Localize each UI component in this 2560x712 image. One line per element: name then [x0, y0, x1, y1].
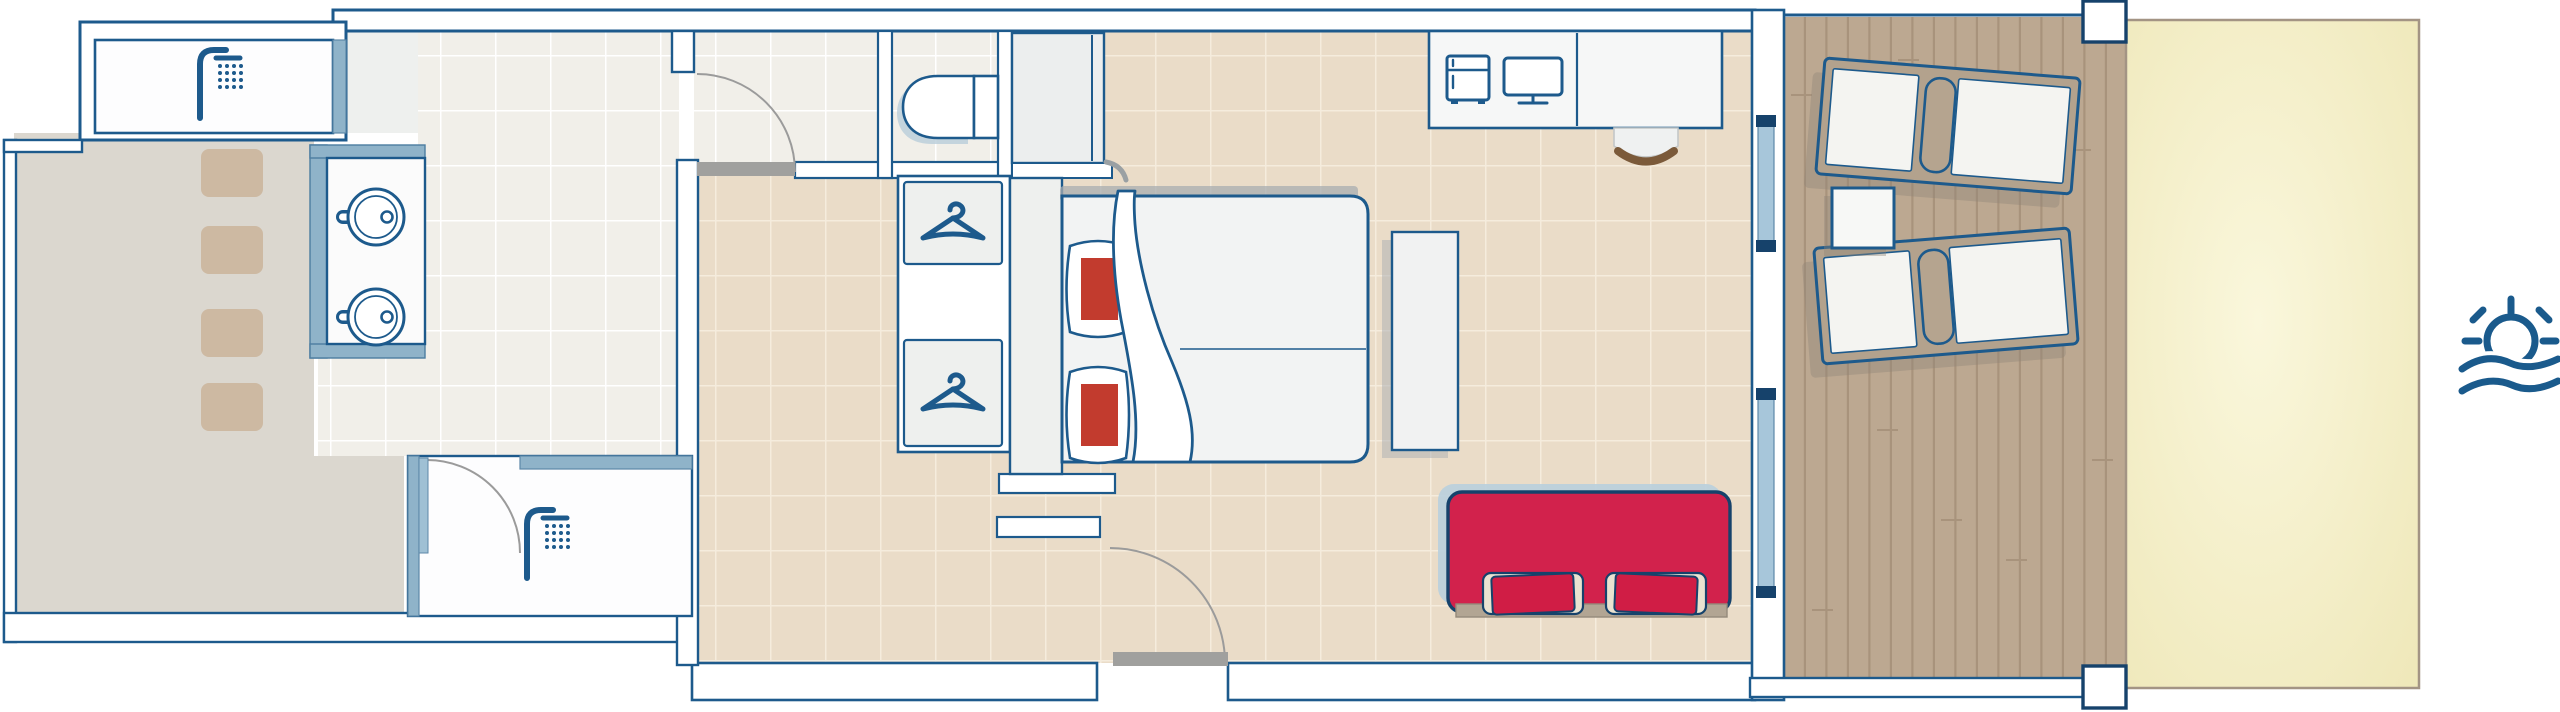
bathroom-floor-ext — [318, 358, 418, 456]
wardrobe — [898, 176, 1010, 452]
floor-plan-canvas — [0, 0, 2560, 712]
pillow-center — [1081, 384, 1118, 446]
stepping-stone — [201, 383, 263, 431]
bed — [1060, 186, 1368, 463]
wardrobe-compartment — [904, 182, 1002, 264]
wall-bottom-main-a — [692, 663, 1097, 700]
glass-panel — [1758, 398, 1774, 588]
sun-over-sea-icon — [2462, 299, 2558, 391]
toilet — [897, 76, 998, 144]
door-leaf — [1113, 652, 1228, 666]
wall-entry-stub — [997, 517, 1100, 537]
wall-bottom-main-b — [1228, 663, 1755, 700]
toilet-tank — [974, 76, 998, 138]
sofa — [1438, 484, 1730, 617]
floor-plan — [0, 0, 2560, 712]
pillow-center — [1081, 258, 1118, 320]
vanity-frame-bottom — [310, 344, 425, 358]
wet-wall-band — [520, 456, 692, 469]
wall-bottom-left — [4, 613, 694, 642]
tv-icon — [1504, 58, 1562, 103]
bed-headboard — [1010, 178, 1062, 474]
wall-top-main — [333, 10, 1755, 31]
mini-fridge-icon — [1447, 56, 1489, 104]
wall-headboard-bottom — [999, 474, 1115, 493]
glass-cap — [1756, 388, 1776, 400]
vanity — [310, 145, 425, 358]
deck-post — [2083, 1, 2126, 42]
toilet-bowl — [903, 76, 974, 138]
inner-shower-room — [408, 456, 692, 616]
wet-wall-band — [408, 456, 419, 616]
wall-divider-stub — [672, 31, 694, 72]
sofa-cushion — [1483, 573, 1583, 615]
glass-cap — [1756, 115, 1776, 127]
stepping-stone — [201, 226, 263, 274]
vanity-frame-left — [310, 145, 327, 358]
stepping-stone — [201, 149, 263, 197]
cabinet-shelf — [1012, 163, 1112, 178]
door-leaf-open — [419, 458, 428, 553]
closet-cabinet — [1012, 33, 1112, 178]
side-table — [1824, 188, 1894, 256]
wall-left — [4, 140, 16, 642]
wardrobe-compartment — [904, 340, 1002, 446]
glass-cap — [1756, 240, 1776, 252]
glass-cap — [1756, 586, 1776, 598]
stepping-stone — [201, 309, 263, 357]
desk-chair — [1614, 128, 1678, 162]
shower-nook-floor — [346, 31, 418, 133]
wall-nook-left — [878, 31, 892, 178]
sofa-cushion — [1606, 573, 1706, 615]
sand-area — [2126, 20, 2419, 688]
wall-courtyard-top — [4, 140, 82, 152]
desk — [1429, 31, 1722, 128]
bed-pillow — [1067, 367, 1130, 463]
deck-post — [2083, 666, 2126, 708]
vanity-frame-top — [310, 145, 425, 158]
wall-nook-right — [998, 31, 1012, 178]
glass-panel — [1758, 125, 1774, 242]
outdoor-shower-room — [95, 40, 346, 133]
wet-wall-band — [333, 40, 346, 133]
bed-bench — [1382, 232, 1458, 458]
door-leaf — [697, 162, 795, 176]
